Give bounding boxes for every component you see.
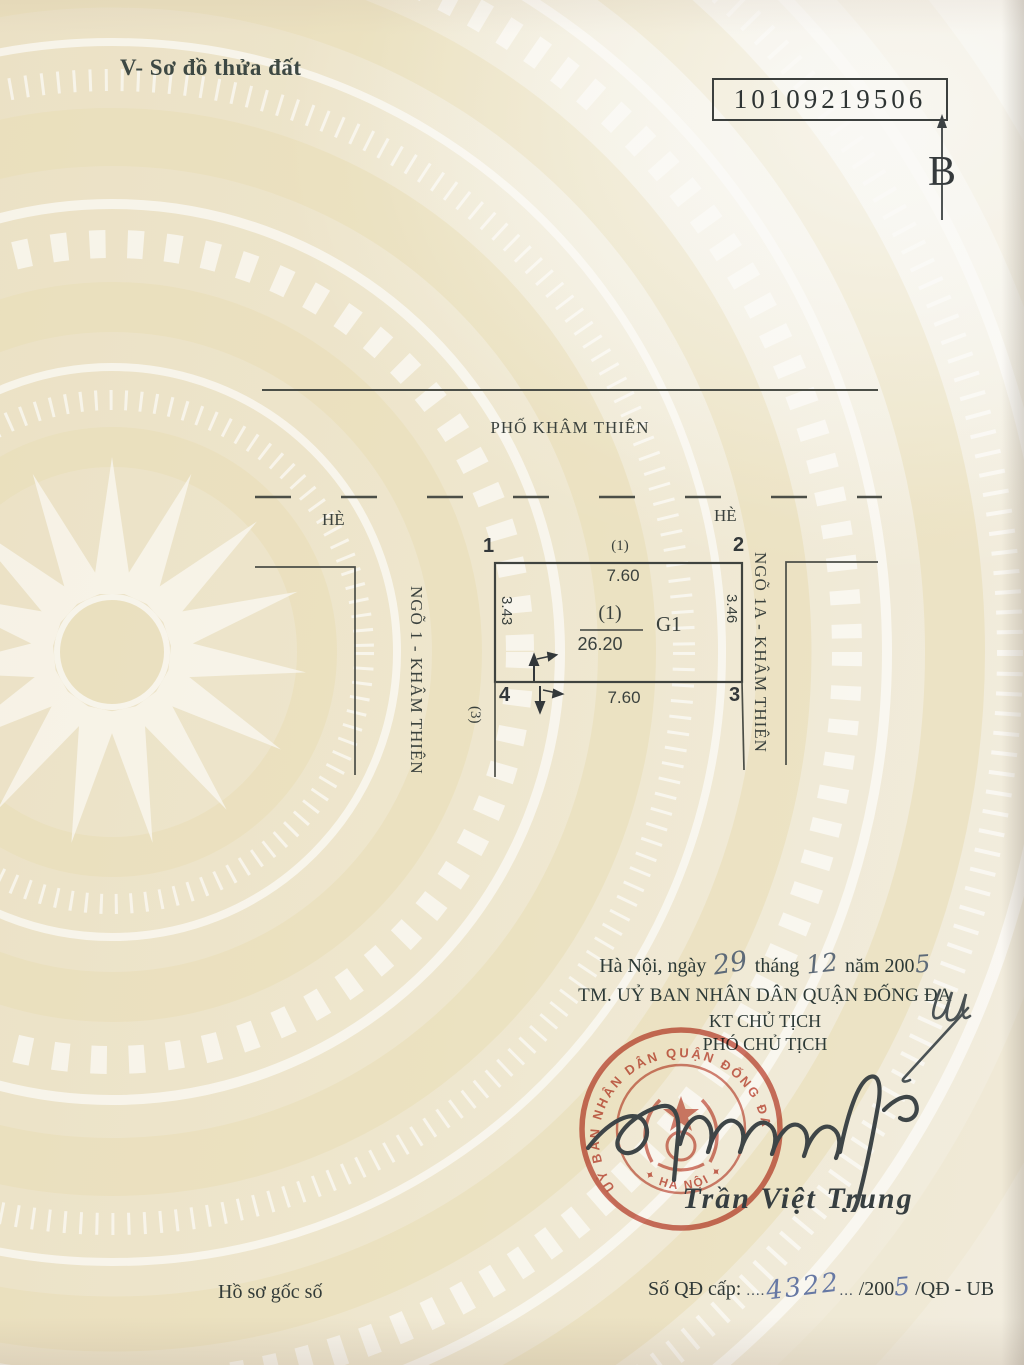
date-year-handwritten: 5 bbox=[915, 950, 932, 979]
date-year-printed: 200 bbox=[884, 955, 914, 977]
decision-suffix: /QĐ - UB bbox=[915, 1278, 994, 1300]
section-title: V- Sơ đồ thửa đất bbox=[120, 55, 302, 81]
area-value: 26.20 bbox=[568, 634, 632, 655]
dim-top: 7.60 bbox=[593, 566, 653, 586]
corner-2-label: 2 bbox=[733, 534, 744, 557]
date-month-label: tháng bbox=[755, 955, 799, 977]
archive-label: Hồ sơ gốc số bbox=[218, 1281, 322, 1304]
parcel-id: 10109219506 bbox=[734, 84, 927, 115]
dim-bottom: 7.60 bbox=[594, 688, 654, 708]
alley-right-label: NGÕ 1A - KHÂM THIÊN bbox=[750, 552, 770, 782]
date-year-label: năm bbox=[845, 955, 879, 977]
decision-year-handwritten: 5 bbox=[893, 1271, 911, 1301]
decision-label: Số QĐ cấp: bbox=[648, 1278, 741, 1300]
street-name-label: PHỐ KHÂM THIÊN bbox=[420, 418, 720, 438]
sidewalk-left-label: HÈ bbox=[322, 510, 345, 530]
alley-right-boundary bbox=[786, 562, 878, 765]
alley-left-label: NGÕ 1 - KHÂM THIÊN bbox=[406, 586, 426, 786]
signer-name: Trần Việt Trung bbox=[598, 1182, 998, 1216]
parcel-ref-top: (1) bbox=[590, 538, 650, 555]
corner-4-label: 4 bbox=[499, 684, 510, 707]
north-label: B bbox=[926, 148, 958, 196]
rear-ref: (3) bbox=[466, 706, 483, 750]
corner-3-label: 3 bbox=[729, 684, 740, 707]
date-day-handwritten: 29 bbox=[711, 946, 750, 982]
dim-left: 3.43 bbox=[498, 596, 515, 656]
document-photo: V- Sơ đồ thửa đất 10109219506 B PHỐ KHÂM… bbox=[0, 0, 1024, 1365]
area-ref: (1) bbox=[580, 602, 640, 625]
date-place: Hà Nội, ngày bbox=[599, 955, 706, 977]
alley-left-boundary bbox=[255, 567, 355, 775]
decision-line: Số QĐ cấp: .... 4322 ... /2005 /QĐ - UB bbox=[648, 1272, 994, 1302]
parcel-id-box: 10109219506 bbox=[712, 78, 948, 121]
parcel-right-extension bbox=[742, 682, 744, 770]
decision-number-handwritten: 4322 bbox=[765, 1268, 842, 1307]
sidewalk-right-label: HÈ bbox=[714, 506, 737, 526]
block-label: G1 bbox=[656, 612, 682, 637]
decision-year-printed: /200 bbox=[859, 1278, 895, 1300]
north-indicator: B bbox=[916, 112, 968, 224]
dim-right: 3.46 bbox=[723, 594, 740, 654]
date-month-handwritten: 12 bbox=[805, 947, 840, 979]
date-line: Hà Nội, ngày 29 tháng 12 năm 2005 bbox=[565, 948, 965, 979]
corner-1-label: 1 bbox=[483, 535, 494, 558]
dotted-line-left: .... bbox=[746, 1283, 765, 1299]
